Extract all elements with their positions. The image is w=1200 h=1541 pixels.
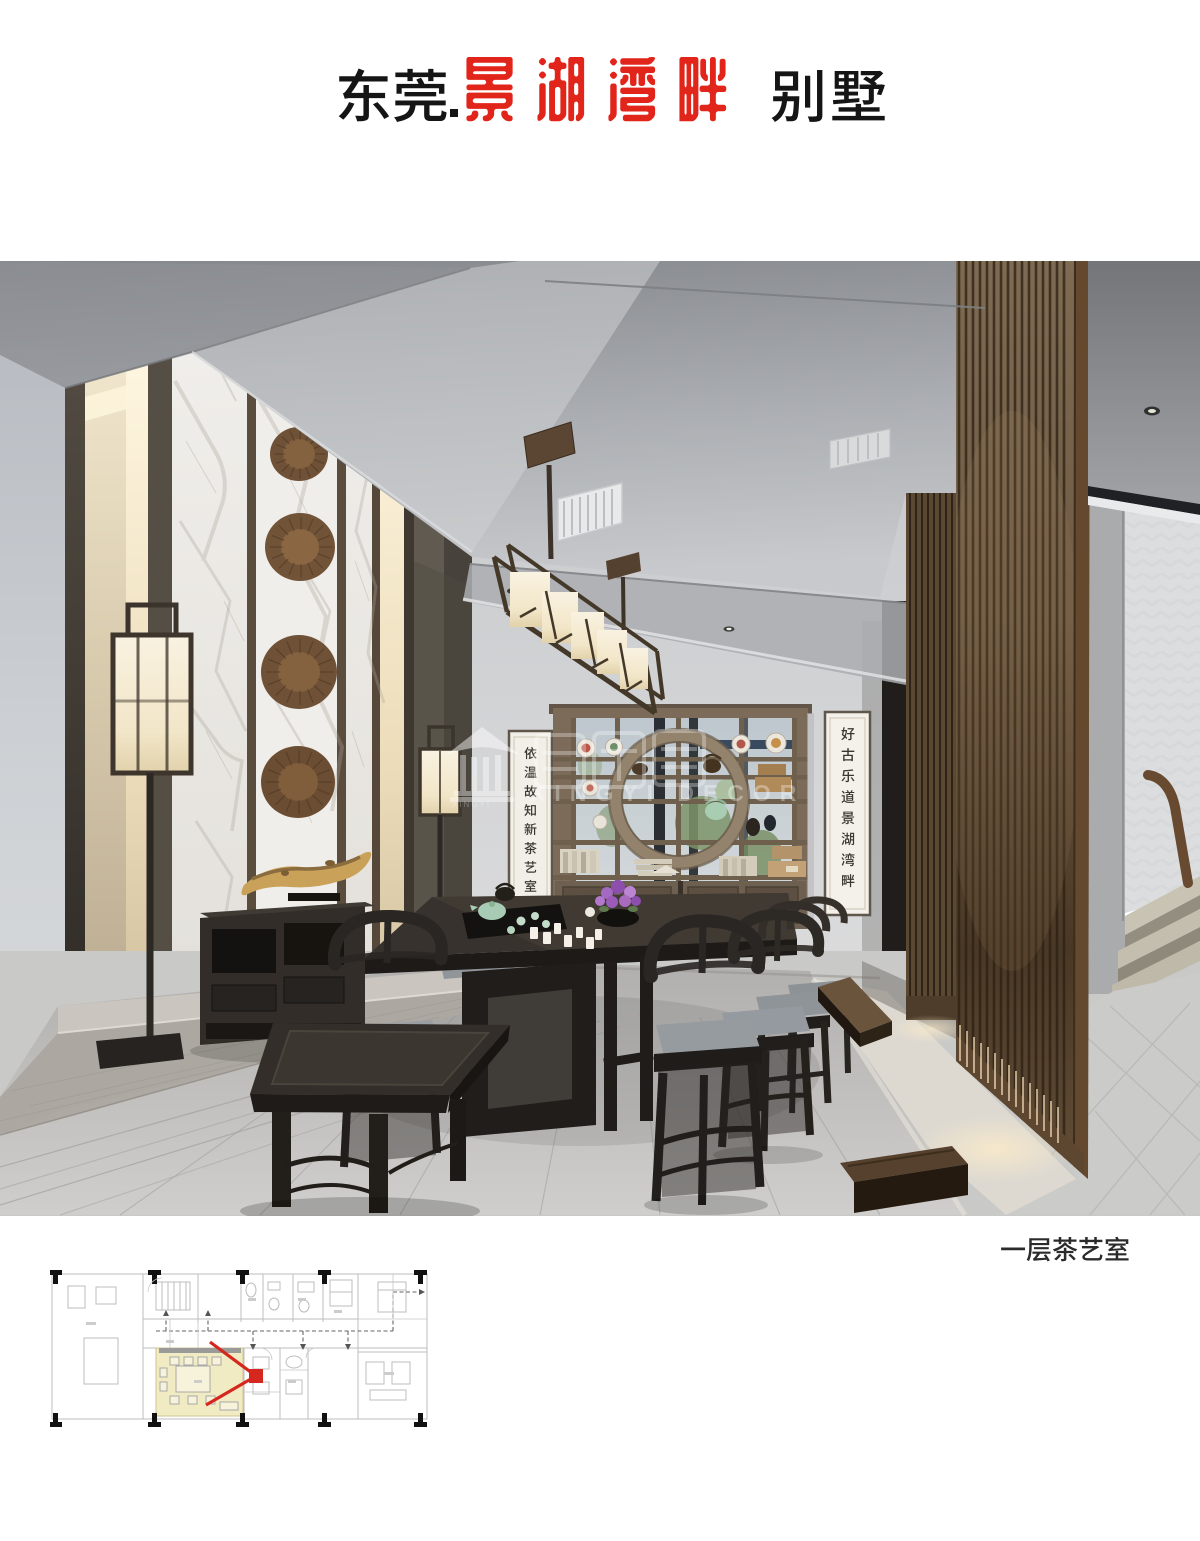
svg-text:XINGYI DECOR: XINGYI DECOR [530,780,805,806]
svg-text:XINGYI: XINGYI [452,800,491,809]
